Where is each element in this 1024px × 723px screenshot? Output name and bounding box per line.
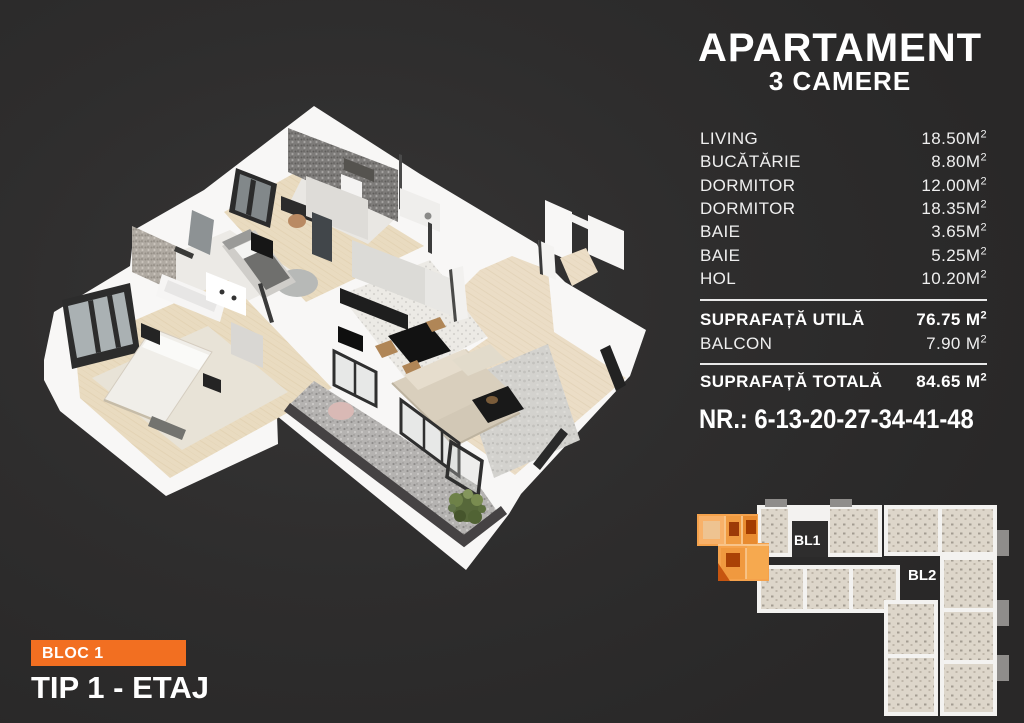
svg-text:BL1: BL1 xyxy=(794,532,821,548)
svg-text:BL2: BL2 xyxy=(908,567,936,584)
